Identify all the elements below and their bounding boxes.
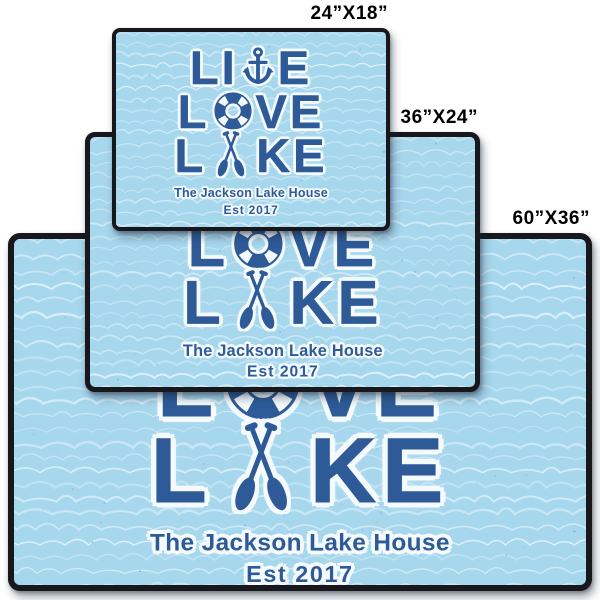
word-lake-letters-pre: L <box>183 271 224 332</box>
word-lake: L KE <box>151 434 449 504</box>
size-label-60x36: 60”X36” <box>513 208 590 230</box>
word-love-letters-post: VE <box>256 88 325 135</box>
doormat-24x18: 24”X18” LI E L VE <box>112 28 390 231</box>
word-lake-letters-pre: L <box>151 423 213 515</box>
est-year-text: Est 2017 <box>247 364 319 382</box>
word-live-letters-pre: LI <box>190 44 238 91</box>
family-name-text: The Jackson Lake House <box>150 529 450 557</box>
word-lake-letters-post: KE <box>289 271 382 332</box>
word-lake: L KE <box>174 137 327 173</box>
word-love-letters-pre: L <box>178 88 210 135</box>
life-ring-icon <box>213 91 253 131</box>
family-name-text: The Jackson Lake House <box>174 186 328 200</box>
size-label-36x24: 36”X24” <box>401 107 478 129</box>
design-slot: LI E L VE L <box>116 32 386 227</box>
word-live-letters-post: E <box>278 44 312 91</box>
word-live: LI E <box>190 49 312 85</box>
est-year-text: Est 2017 <box>223 204 278 218</box>
word-love: L VE <box>178 93 324 129</box>
anchor-icon <box>241 46 275 88</box>
word-lake: L KE <box>183 278 382 325</box>
word-lake-letters-post: KE <box>310 423 449 515</box>
word-lake-letters-pre: L <box>174 132 206 179</box>
crossed-oars-icon <box>228 266 285 336</box>
size-label-24x18: 24”X18” <box>311 3 388 25</box>
family-name-text: The Jackson Lake House <box>183 341 383 360</box>
doormat-surface: LI E L VE L <box>112 28 390 231</box>
word-lake-letters-post: KE <box>256 132 327 179</box>
est-year-text: Est 2017 <box>246 563 353 590</box>
crossed-oars-icon <box>209 128 253 182</box>
doormat-size-mockup: 60”X36” LI E L VE <box>0 0 600 600</box>
crossed-oars-icon <box>219 416 305 521</box>
live-love-lake-design: LI E L VE L <box>174 45 328 217</box>
